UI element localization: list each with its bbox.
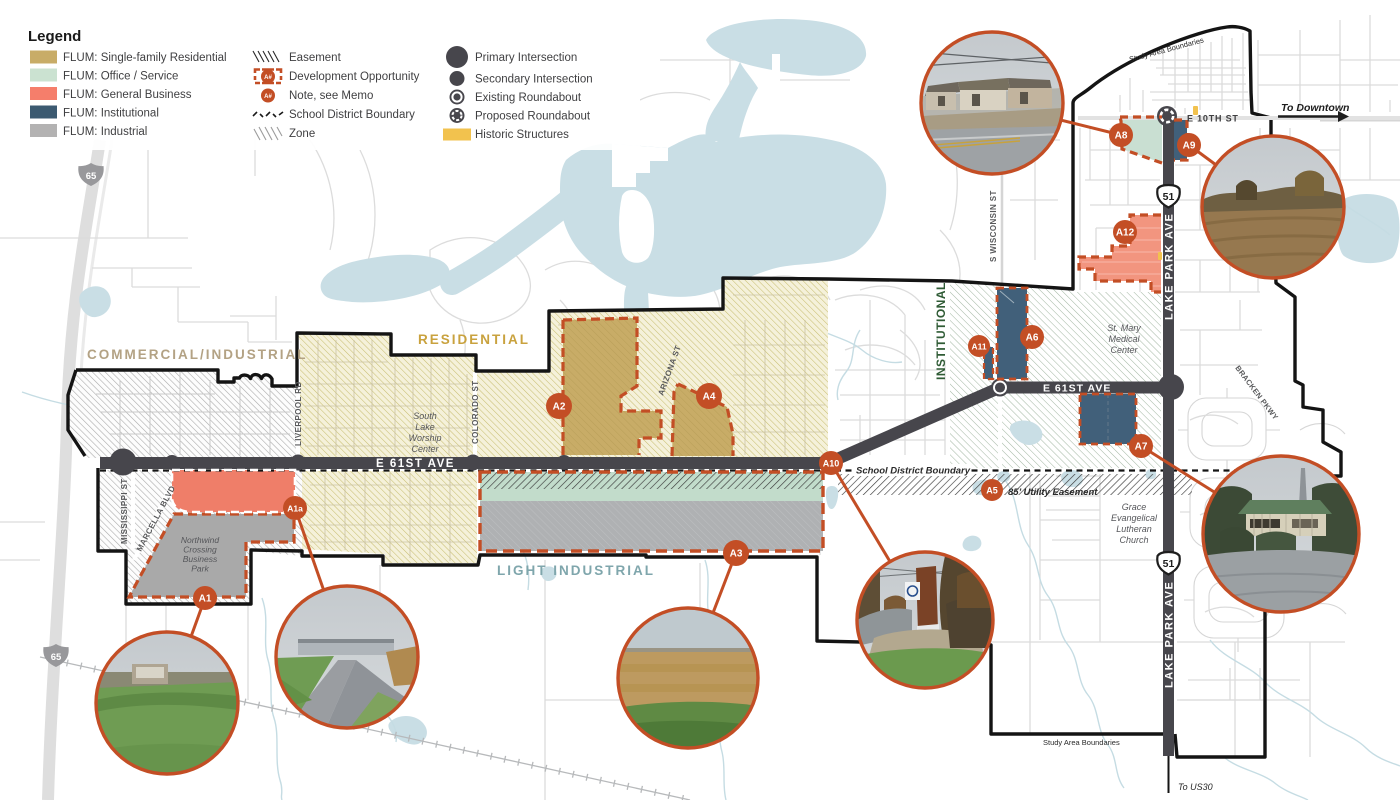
svg-text:COLORADO ST: COLORADO ST	[471, 380, 480, 444]
svg-text:A2: A2	[553, 402, 566, 413]
svg-text:Existing Roundabout: Existing Roundabout	[475, 92, 582, 104]
svg-text:Study Area Boundaries: Study Area Boundaries	[1043, 738, 1120, 747]
svg-text:Lake: Lake	[415, 422, 435, 432]
svg-text:S WISCONSIN ST: S WISCONSIN ST	[989, 190, 998, 262]
svg-text:Park: Park	[191, 564, 209, 574]
svg-text:A5: A5	[986, 486, 998, 496]
svg-text:65: 65	[86, 171, 97, 182]
svg-text:A9: A9	[1183, 141, 1196, 152]
svg-text:Worship: Worship	[408, 433, 441, 443]
svg-text:E 61ST AVE: E 61ST AVE	[1043, 383, 1111, 395]
svg-text:St. Mary: St. Mary	[1107, 323, 1141, 333]
svg-text:MISSISSIPPI ST: MISSISSIPPI ST	[120, 478, 129, 544]
svg-text:LAKE PARK AVE: LAKE PARK AVE	[1164, 581, 1176, 688]
svg-text:School District Boundary: School District Boundary	[289, 109, 415, 121]
svg-text:Secondary Intersection: Secondary Intersection	[475, 74, 593, 86]
svg-text:COMMERCIAL/INDUSTRIAL: COMMERCIAL/INDUSTRIAL	[87, 347, 308, 362]
svg-text:A11: A11	[971, 342, 986, 352]
svg-text:65: 65	[51, 652, 62, 663]
svg-text:LIVERPOOL RD: LIVERPOOL RD	[294, 381, 303, 446]
svg-text:Center: Center	[1110, 345, 1138, 355]
svg-text:A10: A10	[823, 459, 840, 469]
svg-text:A1a: A1a	[287, 504, 303, 514]
svg-text:85’ Utility Easement: 85’ Utility Easement	[1008, 487, 1098, 498]
svg-text:LAKE PARK AVE: LAKE PARK AVE	[1164, 213, 1176, 320]
svg-text:A7: A7	[1135, 442, 1148, 453]
svg-text:FLUM: Single-family Residentia: FLUM: Single-family Residential	[63, 52, 227, 64]
svg-text:FLUM: General Business: FLUM: General Business	[63, 89, 192, 101]
svg-text:Easement: Easement	[289, 52, 342, 64]
svg-text:Proposed Roundabout: Proposed Roundabout	[475, 111, 591, 123]
svg-text:Note, see Memo: Note, see Memo	[289, 90, 373, 102]
svg-text:INSTITUTIONAL: INSTITUTIONAL	[934, 282, 948, 380]
svg-text:Historic Structures: Historic Structures	[475, 129, 569, 141]
svg-text:A8: A8	[1115, 131, 1128, 142]
svg-text:51: 51	[1163, 558, 1175, 570]
svg-text:FLUM: Office / Service: FLUM: Office / Service	[63, 71, 178, 83]
svg-text:A12: A12	[1116, 228, 1135, 239]
svg-text:E 61ST AVE: E 61ST AVE	[376, 458, 455, 470]
svg-text:FLUM: Industrial: FLUM: Industrial	[63, 126, 147, 138]
svg-text:South: South	[413, 411, 437, 421]
svg-text:LIGHT INDUSTRIAL: LIGHT INDUSTRIAL	[497, 563, 655, 578]
svg-text:Development Opportunity: Development Opportunity	[289, 71, 420, 83]
svg-text:Primary Intersection: Primary Intersection	[475, 52, 577, 64]
svg-text:Evangelical: Evangelical	[1111, 513, 1158, 523]
svg-text:Zone: Zone	[289, 128, 315, 140]
svg-text:A3: A3	[730, 549, 743, 560]
svg-text:A1: A1	[199, 594, 212, 605]
svg-text:To US30: To US30	[1178, 782, 1213, 792]
svg-text:Crossing: Crossing	[183, 545, 217, 555]
svg-text:FLUM: Institutional: FLUM: Institutional	[63, 108, 159, 120]
svg-text:Center: Center	[411, 444, 439, 454]
svg-text:Church: Church	[1119, 535, 1148, 545]
svg-text:Lutheran: Lutheran	[1116, 524, 1152, 534]
svg-text:Northwind: Northwind	[181, 535, 220, 545]
svg-text:A4: A4	[703, 392, 716, 403]
svg-text:Legend: Legend	[28, 28, 81, 45]
svg-text:RESIDENTIAL: RESIDENTIAL	[418, 332, 530, 347]
svg-text:A#: A#	[264, 94, 272, 100]
svg-text:Grace: Grace	[1122, 502, 1147, 512]
svg-text:A#: A#	[264, 75, 272, 81]
svg-text:School District Boundary: School District Boundary	[856, 466, 971, 477]
svg-text:Medical: Medical	[1108, 334, 1140, 344]
svg-text:51: 51	[1163, 191, 1175, 203]
svg-text:E 10TH ST: E 10TH ST	[1187, 114, 1239, 124]
svg-text:A6: A6	[1026, 333, 1039, 344]
svg-text:Business: Business	[183, 554, 218, 564]
